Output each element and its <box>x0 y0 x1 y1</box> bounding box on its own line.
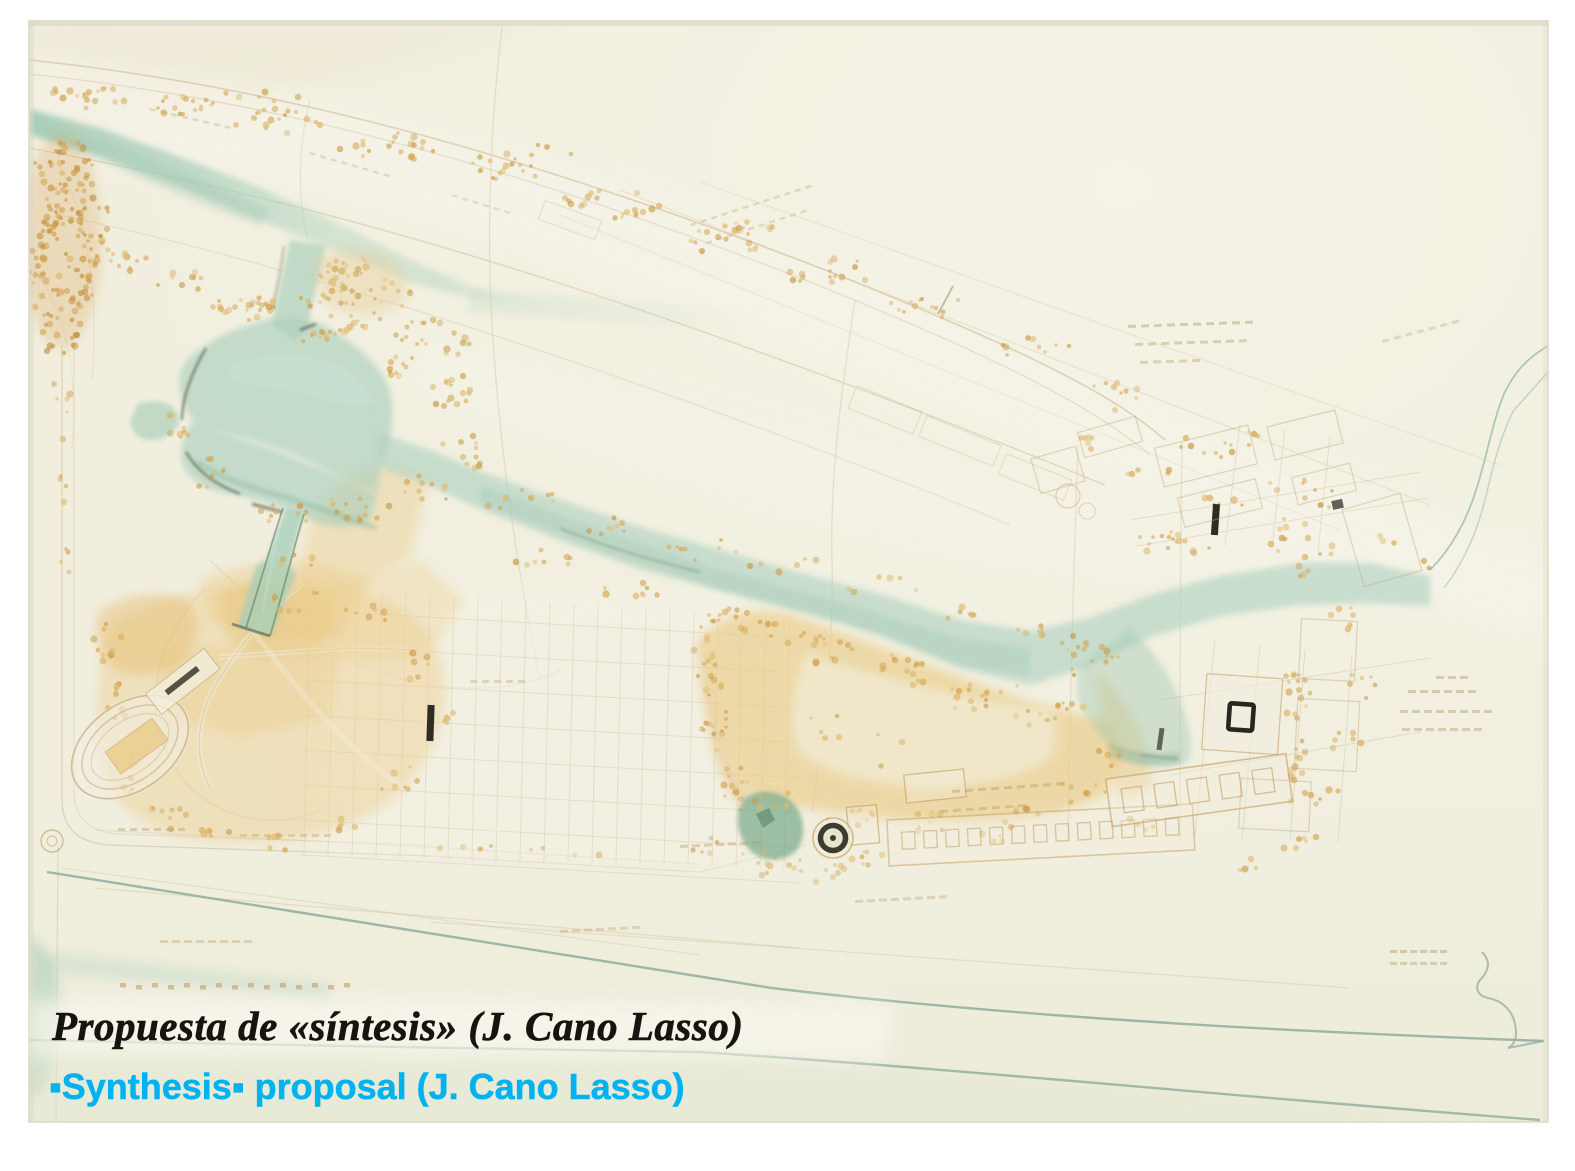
svg-text:▪Synthesis▪ proposal (J. Cano: ▪Synthesis▪ proposal (J. Cano Lasso) <box>49 1066 685 1107</box>
svg-text:Propuesta de «síntesis» (J. Ca: Propuesta de «síntesis» (J. Cano Lasso) <box>51 1003 744 1049</box>
